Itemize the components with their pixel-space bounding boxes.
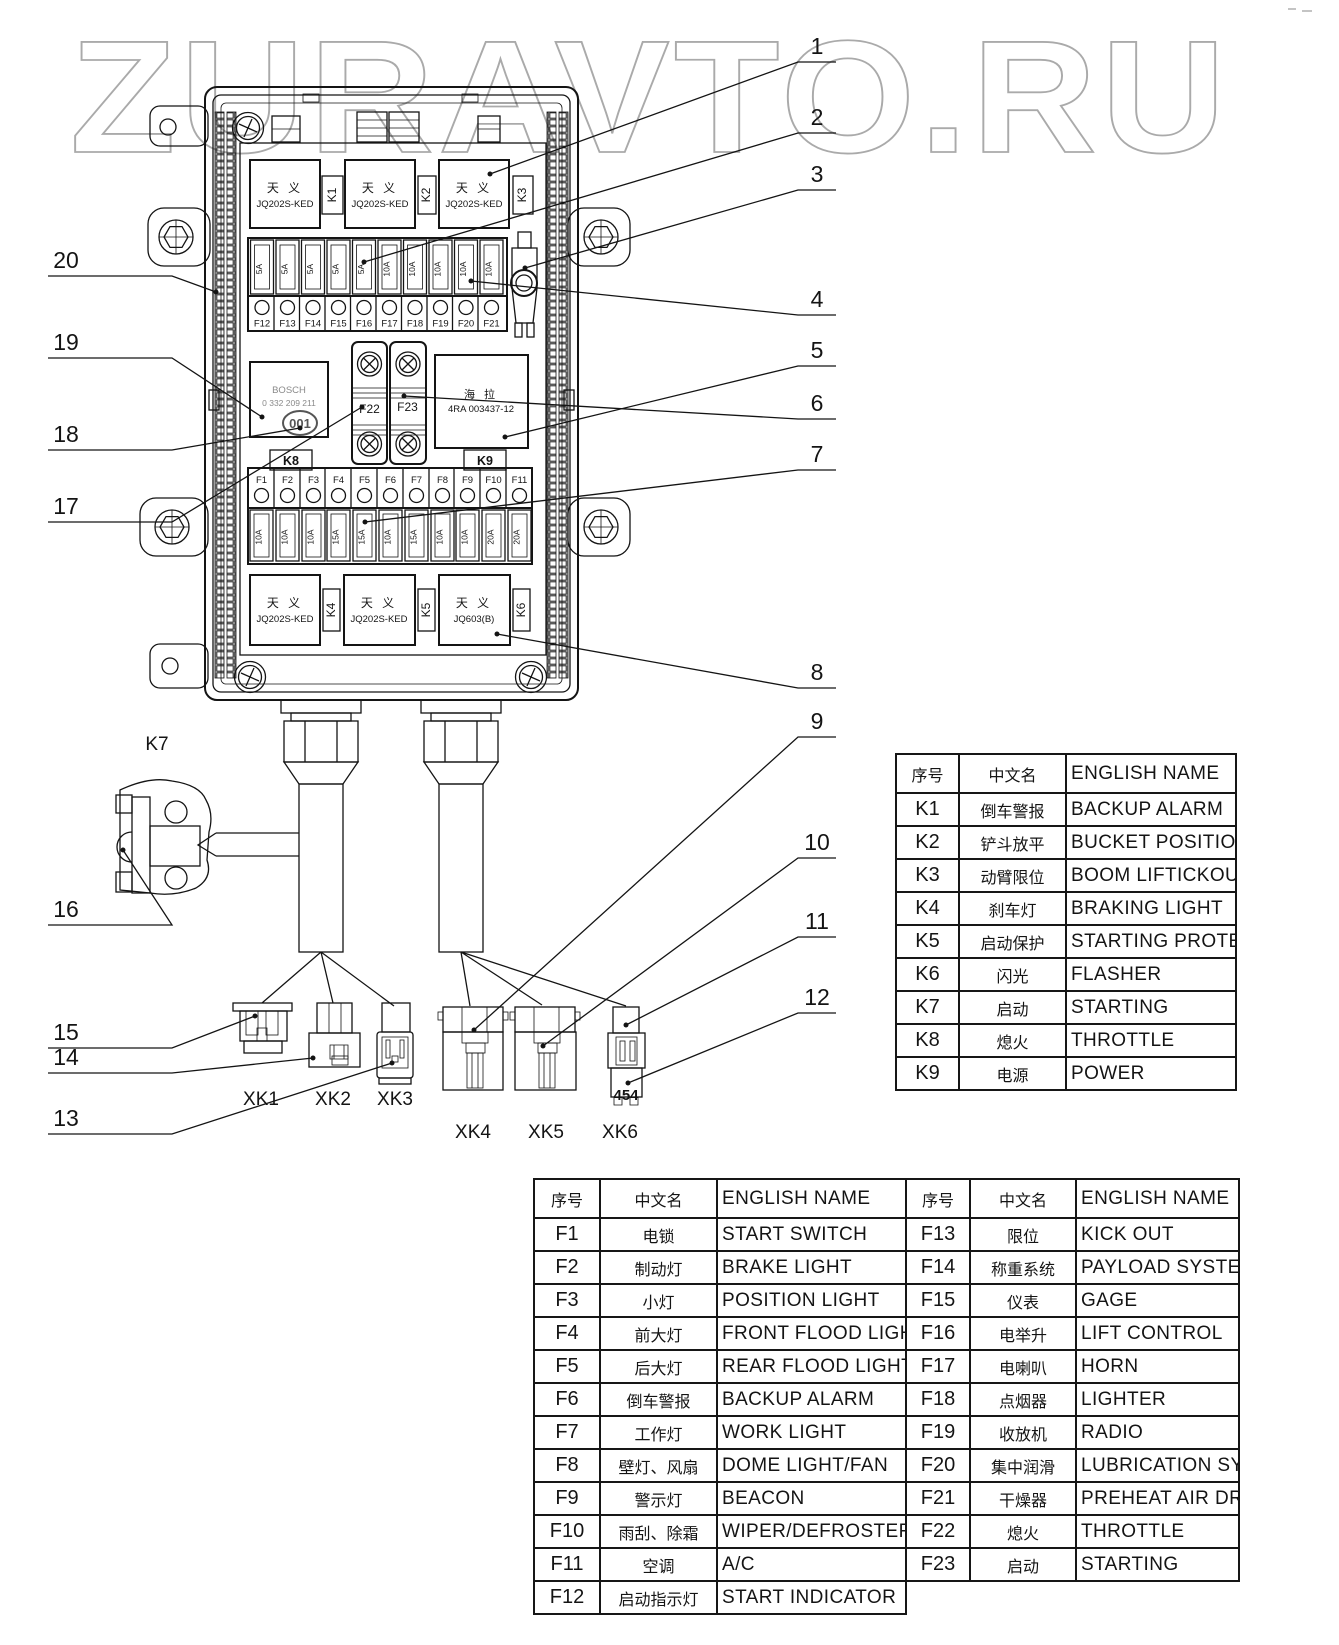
table-cell: 倒车警报 [600,1383,717,1416]
table-cell: START INDICATOR [717,1581,906,1614]
table-cell: REAR FLOOD LIGHT [717,1350,906,1383]
relay-model: JQ202S-KED [350,614,407,625]
fuse-row-mid: F1 F2 F3 F4 F5 F6 F7 F8 F9 F10 F11 10A 1… [248,468,532,564]
svg-text:10A: 10A [383,529,393,544]
fuse-f18: 10A [404,240,427,294]
table-cell: 启动 [959,991,1066,1024]
table-cell: F18 [906,1383,970,1416]
table-cell: F5 [534,1350,600,1383]
mount-bolt-icon [584,510,618,544]
table-cell: K7 [896,991,959,1024]
callout-1: 1 [811,33,824,59]
table-cell: F7 [534,1416,600,1449]
mount-bolt-icon [584,220,618,254]
relay-tag: K1 [325,187,339,202]
relay-tag: K2 [419,187,433,202]
relay-tag: K5 [419,602,433,617]
table-cell: HORN [1076,1350,1239,1383]
callout-20: 20 [53,247,79,273]
xk4-label: XK4 [455,1122,491,1143]
svg-text:10A: 10A [435,529,445,544]
cable-gland-left [281,700,361,952]
table-row: F23启动STARTING [906,1548,1239,1581]
xk5-label: XK5 [528,1122,564,1143]
svg-text:15A: 15A [331,529,341,544]
table-cell: F19 [906,1416,970,1449]
table-row: F16电举升LIFT CONTROL [906,1317,1239,1350]
hella-part-number: 4RA 003437-12 [448,404,514,415]
table-cell: 收放机 [970,1416,1076,1449]
fuse-f12: 5A [251,240,274,294]
table-cell: K5 [896,925,959,958]
svg-text:10A: 10A [254,529,264,544]
svg-text:F17: F17 [381,319,397,330]
relay-brand: 天 义 [456,181,492,195]
table-cell: 启动保护 [959,925,1066,958]
fuse-f4: 15A [327,510,350,561]
table-cell: F15 [906,1284,970,1317]
fuse-f8: 10A [431,510,454,561]
bosch-part-number: 0 332 209 211 [262,398,316,408]
table-cell: LIFT CONTROL [1076,1317,1239,1350]
table-cell: F16 [906,1317,970,1350]
fuse-f7: 15A [405,510,428,561]
callout-19: 19 [53,329,79,355]
svg-text:F4: F4 [333,475,344,486]
relay-brand: 天 义 [362,181,398,195]
fuse-legend-table-left: 序号中文名ENGLISH NAMEF1电锁START SWITCHF2制动灯BR… [533,1178,907,1615]
svg-text:F13: F13 [279,319,295,330]
fuse-row-top: 5A 5A 5A 5A 5A 10A 10A 10A 10A 10A F12 F… [248,238,507,331]
table-header-cell: ENGLISH NAME [717,1179,906,1218]
table-row: K9电源POWER [896,1057,1236,1090]
svg-text:20A: 20A [486,529,496,544]
table-cell: K4 [896,892,959,925]
relay-tag: K6 [514,602,528,617]
relay-brand: 天 义 [267,181,303,195]
terminal-strip [547,112,556,678]
table-cell: BOOM LIFTICKOUT [1066,859,1236,892]
callout-16: 16 [53,896,79,922]
table-cell: PREHEAT AIR DRYER [1076,1482,1239,1515]
table-cell: 限位 [970,1218,1076,1251]
table-cell: 启动指示灯 [600,1581,717,1614]
table-cell: START SWITCH [717,1218,906,1251]
holder-screw-icon [358,432,382,456]
table-cell: F8 [534,1449,600,1482]
svg-text:F18: F18 [407,319,423,330]
svg-text:5A: 5A [356,263,366,274]
table-header-cell: 序号 [906,1179,970,1218]
svg-text:5A: 5A [280,263,290,274]
table-row: K8熄火THROTTLE [896,1024,1236,1057]
svg-text:F2: F2 [282,475,293,486]
harness-branch-k7 [198,833,299,856]
table-cell: 称重系统 [970,1251,1076,1284]
hella-brand: 海 拉 [464,387,498,401]
table-cell: 启动 [970,1548,1076,1581]
table-cell: F9 [534,1482,600,1515]
table-row: K6闪光FLASHER [896,958,1236,991]
svg-text:10A: 10A [382,261,392,276]
table-row: F1电锁START SWITCH [534,1218,906,1251]
table-cell: LIGHTER [1076,1383,1239,1416]
svg-text:F12: F12 [254,319,270,330]
relay-brand: 天 义 [267,596,303,610]
connector-xk1 [233,1003,292,1053]
fuse-f3: 10A [302,510,325,561]
table-cell: F4 [534,1317,600,1350]
table-cell: F17 [906,1350,970,1383]
fuse-puller [511,232,537,337]
panel-screw-icon [516,662,547,693]
table-row: F13限位KICK OUT [906,1218,1239,1251]
svg-text:F20: F20 [458,319,474,330]
table-cell: 空调 [600,1548,717,1581]
table-cell: A/C [717,1548,906,1581]
connector-labels: XK1 XK2 XK3 XK4 XK5 XK6 [243,1089,638,1143]
table-row: F11空调A/C [534,1548,906,1581]
callout-10: 10 [804,829,830,855]
callout-7: 7 [811,441,824,467]
table-row: F7工作灯WORK LIGHT [534,1416,906,1449]
table-cell: STARTING [1076,1548,1239,1581]
holder-screw-icon [396,432,420,456]
svg-text:F9: F9 [462,475,473,486]
xk2-label: XK2 [315,1089,351,1110]
callout-6: 6 [811,390,824,416]
svg-text:F11: F11 [512,475,528,486]
table-row: F18点烟器LIGHTER [906,1383,1239,1416]
table-cell: 铲斗放平 [959,826,1066,859]
callout-3: 3 [811,161,824,187]
svg-text:5A: 5A [331,263,341,274]
svg-text:F15: F15 [330,319,346,330]
table-cell: 警示灯 [600,1482,717,1515]
table-row: K2铲斗放平BUCKET POSITIONER [896,826,1236,859]
table-cell: F20 [906,1449,970,1482]
table-cell: K1 [896,793,959,826]
svg-text:15A: 15A [357,529,367,544]
relay-tag: K4 [324,602,338,617]
cable-gland-right [421,700,501,952]
panel-screw-icon [235,662,266,693]
table-cell: BACKUP ALARM [1066,793,1236,826]
table-cell: K3 [896,859,959,892]
table-row: F10雨刮、除霜WIPER/DEFROSTER [534,1515,906,1548]
svg-text:10A: 10A [306,529,316,544]
table-cell: 干燥器 [970,1482,1076,1515]
table-cell: F12 [534,1581,600,1614]
svg-text:15A: 15A [409,529,419,544]
table-cell: THROTTLE [1076,1515,1239,1548]
connector-xk6: 454 [608,1007,645,1105]
table-row: F14称重系统PAYLOAD SYSTEM [906,1251,1239,1284]
table-cell: 熄火 [959,1024,1066,1057]
fuse-f17: 10A [378,240,401,294]
table-header-cell: ENGLISH NAME [1066,754,1236,793]
callout-9: 9 [811,708,824,734]
callout-11: 11 [805,908,829,934]
fuse-f5: 15A [353,510,376,561]
callout-18: 18 [53,421,79,447]
table-cell: GAGE [1076,1284,1239,1317]
svg-text:20A: 20A [512,529,522,544]
table-cell: BACKUP ALARM [717,1383,906,1416]
table-cell: K9 [896,1057,959,1090]
callout-2: 2 [811,104,824,130]
table-cell: FRONT FLOOD LIGHT [717,1317,906,1350]
fuse-f20: 10A [455,240,478,294]
table-row: F15仪表GAGE [906,1284,1239,1317]
table-header-cell: 中文名 [959,754,1066,793]
callout-12: 12 [804,984,830,1010]
table-cell: 后大灯 [600,1350,717,1383]
connector-xk4 [438,1007,508,1090]
svg-text:10A: 10A [433,261,443,276]
relay-model: JQ202S-KED [351,199,408,210]
mount-bolt-icon [159,220,193,254]
table-cell: 电喇叭 [970,1350,1076,1383]
svg-text:F7: F7 [411,475,422,486]
svg-text:F21: F21 [483,319,499,330]
table-row: F4前大灯FRONT FLOOD LIGHT [534,1317,906,1350]
relay-model: JQ202S-KED [445,199,502,210]
fuse-f2: 10A [276,510,299,561]
table-cell: K2 [896,826,959,859]
fuse-f9: 10A [456,510,479,561]
table-cell: 雨刮、除霜 [600,1515,717,1548]
table-cell: 倒车警报 [959,793,1066,826]
table-cell: POSITION LIGHT [717,1284,906,1317]
table-row: F17电喇叭HORN [906,1350,1239,1383]
table-row: K1倒车警报BACKUP ALARM [896,793,1236,826]
callout-13: 13 [53,1105,79,1131]
table-row: F8壁灯、风扇DOME LIGHT/FAN [534,1449,906,1482]
fuse-box-diagram-page: ZURAVTO.RU [0,0,1339,1645]
fuse-f23-label: F23 [397,400,418,414]
svg-text:10A: 10A [484,261,494,276]
xk1-label: XK1 [243,1089,279,1110]
xk6-label: XK6 [602,1122,638,1143]
table-cell: 熄火 [970,1515,1076,1548]
fuse-f16: 5A [353,240,376,294]
table-cell: 闪光 [959,958,1066,991]
table-cell: 电举升 [970,1317,1076,1350]
table-row: F2制动灯BRAKE LIGHT [534,1251,906,1284]
table-cell: F23 [906,1548,970,1581]
table-cell: F21 [906,1482,970,1515]
fuse-f13: 5A [276,240,299,294]
table-cell: 壁灯、风扇 [600,1449,717,1482]
watermark-text: ZURAVTO.RU [70,7,1230,186]
fuse-f11: 20A [508,510,531,561]
hella-flasher-unit: 海 拉 4RA 003437-12 [435,355,528,448]
table-cell: 集中润滑 [970,1449,1076,1482]
table-cell: RADIO [1076,1416,1239,1449]
fuse-legend-table-right: 序号中文名ENGLISH NAMEF13限位KICK OUTF14称重系统PAY… [905,1178,1240,1582]
holder-screw-icon [396,352,420,376]
table-header-cell: ENGLISH NAME [1076,1179,1239,1218]
xk3-label: XK3 [377,1089,413,1110]
table-cell: F3 [534,1284,600,1317]
table-cell: LUBRICATION SYSTEM [1076,1449,1239,1482]
table-cell: BUCKET POSITIONER [1066,826,1236,859]
watermark-fragment [1288,9,1312,11]
svg-text:F10: F10 [485,475,501,486]
table-cell: WIPER/DEFROSTER [717,1515,906,1548]
table-cell: STARTING PROTECTION [1066,925,1236,958]
fuse-f14: 5A [302,240,325,294]
relay-legend-table: 序号中文名ENGLISH NAMEK1倒车警报BACKUP ALARMK2铲斗放… [895,753,1237,1091]
table-row: F9警示灯BEACON [534,1482,906,1515]
table-cell: BRAKE LIGHT [717,1251,906,1284]
table-row: F19收放机RADIO [906,1416,1239,1449]
k7-connector: K7 [116,734,211,894]
table-row: F3小灯POSITION LIGHT [534,1284,906,1317]
fuse-f19: 10A [429,240,452,294]
table-cell: F14 [906,1251,970,1284]
table-cell: 动臂限位 [959,859,1066,892]
svg-text:F5: F5 [359,475,370,486]
maxi-fuse-holder: F22 F23 [352,342,426,464]
table-cell: F10 [534,1515,600,1548]
xk6-code: 454 [613,1087,639,1104]
svg-text:5A: 5A [254,263,264,274]
relay-brand: 天 义 [456,596,492,610]
table-cell: K8 [896,1024,959,1057]
table-cell: STARTING [1066,991,1236,1024]
relay-model: JQ202S-KED [256,614,313,625]
bosch-brand: BOSCH [272,385,306,396]
table-cell: 刹车灯 [959,892,1066,925]
svg-text:10A: 10A [280,529,290,544]
relay-model: JQ603(B) [454,614,495,625]
table-cell: 仪表 [970,1284,1076,1317]
holder-screw-icon [358,352,382,376]
table-row: F20集中润滑LUBRICATION SYSTEM [906,1449,1239,1482]
table-cell: K6 [896,958,959,991]
svg-text:5A: 5A [305,263,315,274]
fuse-f15: 5A [327,240,350,294]
k9-label: K9 [477,454,493,468]
table-cell: POWER [1066,1057,1236,1090]
relay-row-bottom: 天 义 JQ202S-KED K4 天 义 JQ202S-KED K5 天 义 … [250,575,530,645]
connector-xk3 [377,1003,413,1084]
callout-17: 17 [53,493,79,519]
svg-text:F16: F16 [356,319,372,330]
table-cell: F13 [906,1218,970,1251]
table-header-cell: 中文名 [970,1179,1076,1218]
table-cell: 电源 [959,1057,1066,1090]
table-cell: 电锁 [600,1218,717,1251]
k8-label: K8 [283,454,299,468]
table-row: F5后大灯REAR FLOOD LIGHT [534,1350,906,1383]
harness-branch-lines [262,952,626,1006]
relay-tag: K3 [515,187,529,202]
table-row: F21干燥器PREHEAT AIR DRYER [906,1482,1239,1515]
fuse-f10: 20A [482,510,505,561]
table-cell: 制动灯 [600,1251,717,1284]
callout-15: 15 [53,1019,79,1045]
table-cell: F2 [534,1251,600,1284]
table-cell: 点烟器 [970,1383,1076,1416]
table-cell: BRAKING LIGHT [1066,892,1236,925]
callout-14: 14 [53,1044,79,1070]
table-header-cell: 中文名 [600,1179,717,1218]
table-cell: BEACON [717,1482,906,1515]
svg-text:F1: F1 [256,475,267,486]
fuse-f21: 10A [480,240,503,294]
table-cell: F11 [534,1548,600,1581]
table-cell: DOME LIGHT/FAN [717,1449,906,1482]
table-cell: F22 [906,1515,970,1548]
table-row: K3动臂限位BOOM LIFTICKOUT [896,859,1236,892]
table-cell: WORK LIGHT [717,1416,906,1449]
table-cell: 前大灯 [600,1317,717,1350]
callout-8: 8 [811,659,824,685]
table-row: F6倒车警报BACKUP ALARM [534,1383,906,1416]
callout-5: 5 [811,337,824,363]
table-cell: PAYLOAD SYSTEM [1076,1251,1239,1284]
table-cell: FLASHER [1066,958,1236,991]
table-header-cell: 序号 [534,1179,600,1218]
svg-text:10A: 10A [460,529,470,544]
svg-text:10A: 10A [458,261,468,276]
table-cell: F6 [534,1383,600,1416]
connector-xk2 [309,1003,360,1067]
connector-xk5 [510,1007,580,1090]
relay-brand: 天 义 [361,596,397,610]
svg-text:F3: F3 [308,475,319,486]
table-row: K5启动保护STARTING PROTECTION [896,925,1236,958]
table-row: K7启动STARTING [896,991,1236,1024]
table-cell: F1 [534,1218,600,1251]
table-cell: KICK OUT [1076,1218,1239,1251]
relay-model: JQ202S-KED [256,199,313,210]
bosch-relay: BOSCH 0 332 209 211 001 [250,362,328,437]
fuse-f1: 10A [250,510,273,561]
table-cell: THROTTLE [1066,1024,1236,1057]
table-row: F12启动指示灯START INDICATOR [534,1581,906,1614]
svg-text:F19: F19 [432,319,448,330]
table-cell: 小灯 [600,1284,717,1317]
table-row: K4刹车灯BRAKING LIGHT [896,892,1236,925]
svg-text:F8: F8 [437,475,448,486]
svg-text:10A: 10A [407,261,417,276]
callout-4: 4 [811,286,824,312]
svg-text:F6: F6 [385,475,396,486]
table-cell: 工作灯 [600,1416,717,1449]
table-row: F22熄火THROTTLE [906,1515,1239,1548]
k7-label: K7 [145,734,168,755]
table-header-cell: 序号 [896,754,959,793]
svg-text:F14: F14 [305,319,321,330]
